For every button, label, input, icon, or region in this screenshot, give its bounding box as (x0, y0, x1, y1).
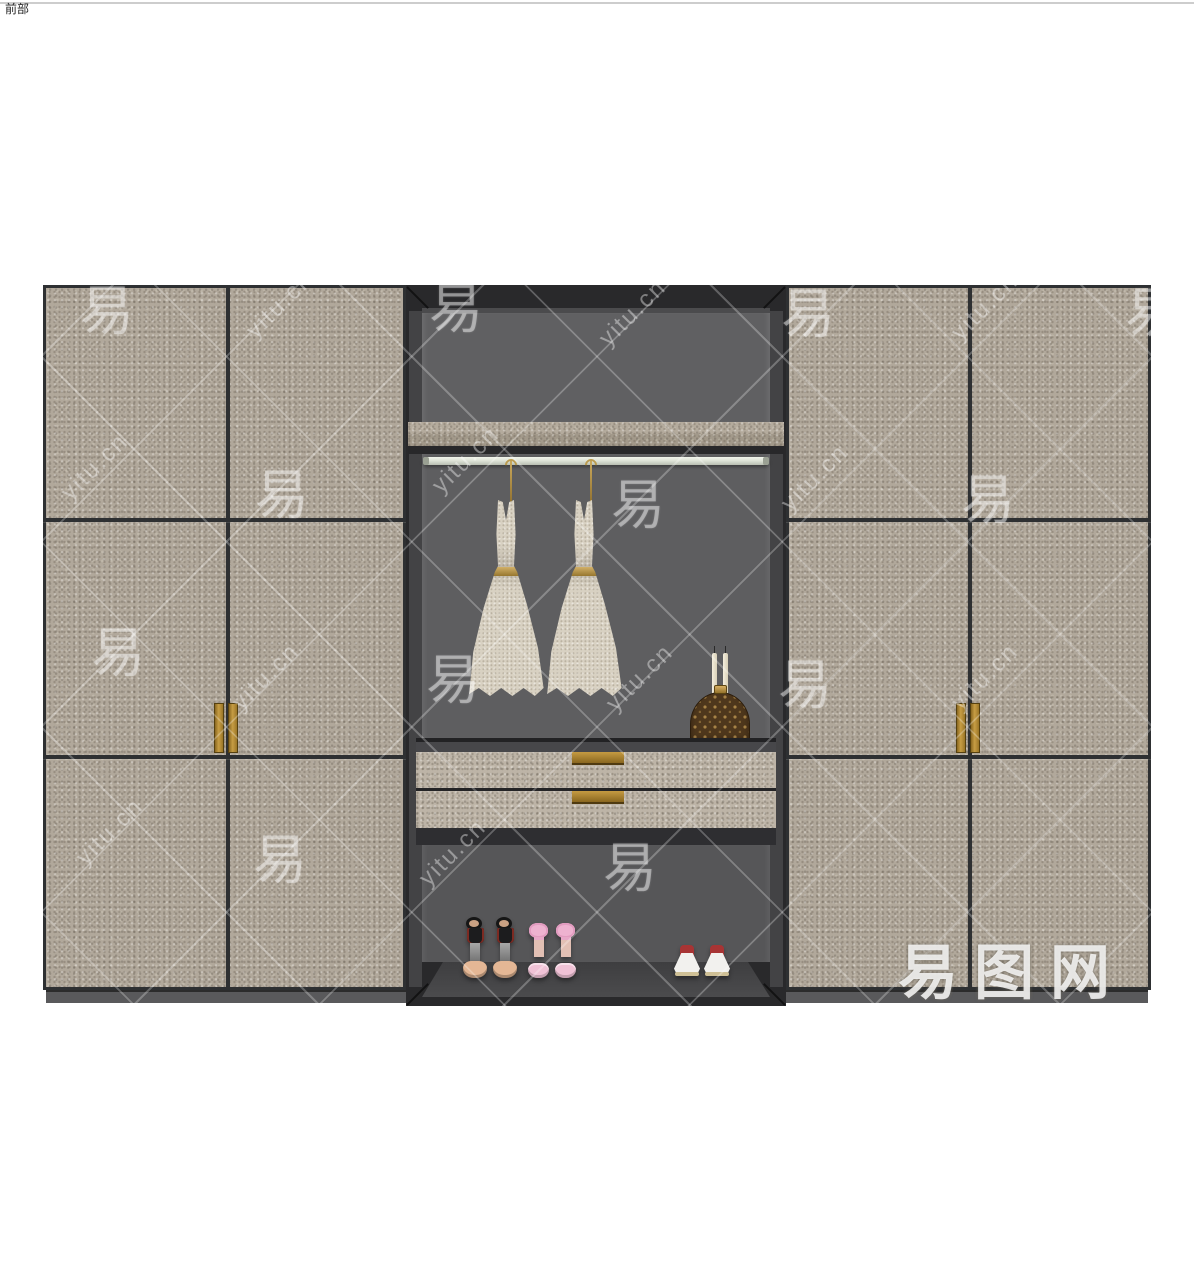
drawer-top-band (416, 738, 776, 752)
sandal-platform (528, 963, 549, 978)
door-handle-right-a (956, 703, 966, 753)
hanger-hook (590, 461, 592, 507)
viewport-top-border (0, 2, 1194, 4)
heel-shaft (470, 943, 480, 963)
door-divider-horizontal (786, 755, 1151, 759)
wardrobe-right-door-block (786, 285, 1151, 990)
high-heel-shoe (462, 917, 489, 979)
frame-miter (763, 286, 786, 309)
sneaker-shoe (674, 945, 700, 977)
upper-compartment-back-wall (422, 308, 770, 422)
shelf-front-edge (408, 434, 784, 446)
handbag-clasp (714, 685, 727, 694)
sandal-platform (555, 963, 576, 978)
frame-miter (406, 286, 429, 309)
wardrobe-left-door-block (43, 285, 406, 990)
niche-side-face-right (770, 311, 783, 987)
door-divider-horizontal (786, 518, 1151, 522)
rod-end-cap (423, 457, 429, 465)
sandal-shaft (534, 937, 544, 957)
heel-platform (463, 961, 487, 978)
sandal-shaft (561, 937, 571, 957)
scene-tab-label: 前部 (5, 3, 29, 16)
render-viewport: 前部 (0, 0, 1194, 1281)
pink-sandals-pair (527, 923, 579, 979)
heel-vamp (497, 928, 514, 943)
heel-platform (493, 961, 517, 978)
drawer-handle-lower (572, 791, 624, 804)
sandal-straps (556, 923, 575, 938)
sneaker-sole (675, 972, 699, 976)
sandal-straps (529, 923, 548, 938)
pink-sandal-shoe (527, 923, 551, 979)
door-handle-left-b (228, 703, 238, 753)
door-divider-vertical (968, 285, 972, 990)
sneaker-sole (705, 972, 729, 976)
heel-shaft (500, 943, 510, 963)
sneaker-shoe (704, 945, 730, 977)
sneaker-body (704, 953, 730, 973)
hanger-hook (510, 461, 512, 507)
drawer-unit (416, 738, 776, 845)
heel-vamp (467, 928, 484, 943)
door-handle-right-b (970, 703, 980, 753)
niche-side-face-left (409, 311, 422, 987)
shelf (408, 422, 784, 454)
shelf-shadow (408, 446, 784, 454)
red-white-sneakers-pair (674, 945, 732, 977)
high-heel-shoe (492, 917, 519, 979)
drawer-handle-upper (572, 752, 624, 765)
door-divider-horizontal (43, 518, 406, 522)
high-heels-pair (462, 917, 526, 979)
sneaker-body (674, 953, 700, 973)
door-handle-left-a (214, 703, 224, 753)
shelf-top-surface (408, 422, 784, 434)
door-divider-horizontal (43, 755, 406, 759)
door-divider-vertical (226, 285, 230, 990)
pink-sandal-shoe (554, 923, 578, 979)
wardrobe-center-open-unit (406, 285, 786, 1006)
rod-end-cap (763, 457, 769, 465)
drawer-bottom-band (416, 828, 776, 845)
